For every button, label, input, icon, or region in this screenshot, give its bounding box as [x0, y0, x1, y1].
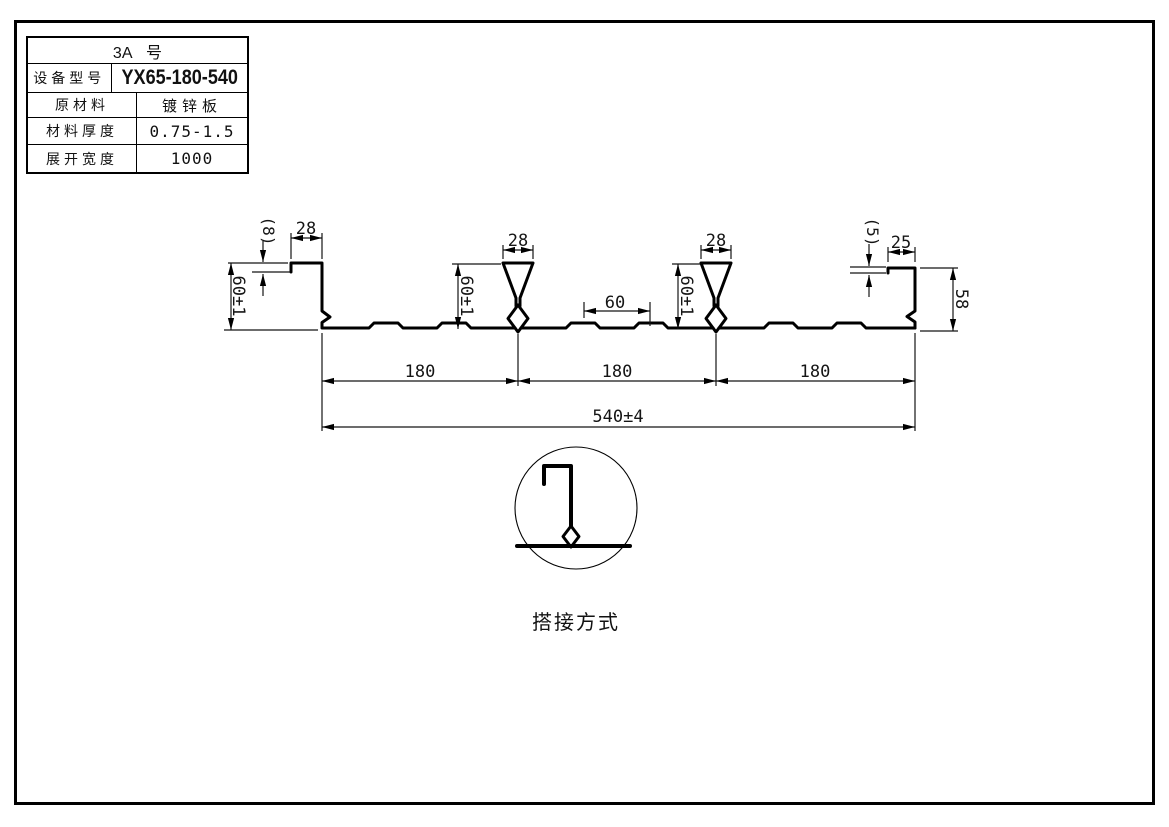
- dim-pitch-2: 180: [602, 362, 633, 382]
- cad-drawing: (8) 28 60±1 28 60±1 60 28 60±1 (5) 25 58…: [0, 0, 1169, 827]
- dim-left-top-width: 28: [296, 219, 316, 239]
- lap-joint-rib: [544, 466, 571, 526]
- dim-left-lip: (8): [259, 217, 278, 246]
- dim-right-lip: (5): [863, 218, 882, 247]
- dim-pitch-3: 180: [800, 362, 831, 382]
- dim-pitch-1: 180: [405, 362, 436, 382]
- detail-caption: 搭接方式: [532, 611, 620, 634]
- dimension-lines: [224, 233, 958, 431]
- page: 3A 号 设备型号 YX65-180-540 原材料 镀锌板 材料厚度 0.75…: [0, 0, 1169, 827]
- dim-right-height: 58: [951, 289, 971, 309]
- dim-left-height: 60±1: [228, 276, 248, 317]
- dim-overall-width: 540±4: [592, 407, 643, 427]
- dim-rib2-height: 60±1: [676, 276, 696, 317]
- dim-rib2-top-width: 28: [706, 231, 726, 251]
- lap-joint-detail: [515, 447, 637, 569]
- dim-right-top-width: 25: [891, 233, 911, 253]
- dim-pan-flat: 60: [605, 293, 625, 313]
- profile-outline: [291, 263, 915, 332]
- dim-rib1-top-width: 28: [508, 231, 528, 251]
- lap-joint-lock-diamond: [563, 526, 579, 547]
- dim-rib1-height: 60±1: [456, 276, 476, 317]
- detail-circle: [515, 447, 637, 569]
